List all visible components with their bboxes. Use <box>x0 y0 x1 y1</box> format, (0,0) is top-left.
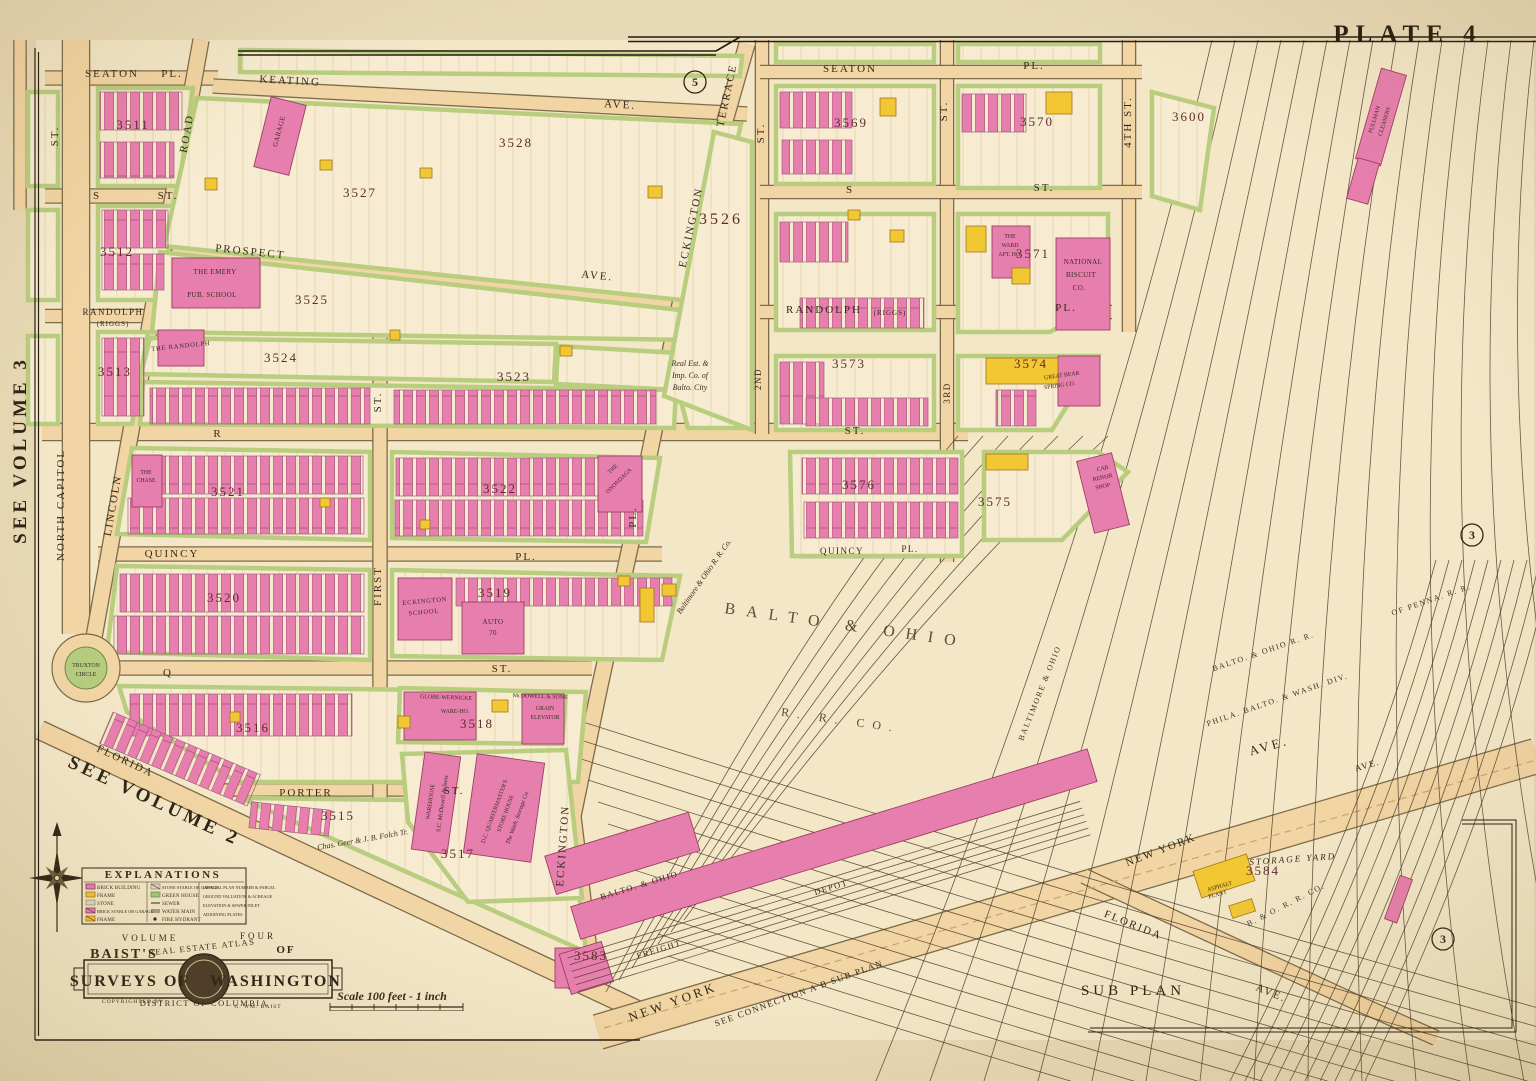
label-buildings-real3: Balto. City <box>673 383 708 392</box>
label-buildings-ward0: THE <box>1004 234 1016 240</box>
label-landmarks-truxton2: CIRCLE <box>76 672 97 678</box>
label-legend-col1-3: BRICK STABLE OR GARAGE <box>97 909 153 914</box>
label-streets-quincy_e: QUINCY <box>820 546 864 556</box>
city-block <box>28 210 58 300</box>
label-streets-nc_st: ST. <box>49 126 61 147</box>
label-buildings-chase1: THE <box>140 470 152 476</box>
label-buildings-natbisc2: BISCUIT <box>1066 271 1096 279</box>
label-buildings-globe2: WARE-HO. <box>441 709 470 715</box>
rowhouse-strip <box>804 502 958 538</box>
label-legend-col2-3: WATER MAIN <box>162 910 195 915</box>
label-landmarks-truxton1: TRUXTON <box>72 663 100 669</box>
label-cartouche-author: G. WM. BAIST <box>234 1004 281 1010</box>
label-blocks-b3569: 3569 <box>834 115 868 130</box>
label-buildings-real2: Imp. Co. of <box>671 371 710 380</box>
frame-building <box>986 454 1028 470</box>
label-streets-randolph_e_pl: PL. <box>1055 302 1077 314</box>
label-legend-col2-4: FIRE HYDRANT <box>162 918 201 923</box>
legend-symbol-fire-hydrant <box>153 917 156 920</box>
label-blocks-b3519: 3519 <box>478 585 512 600</box>
label-buildings-real1: Real Est. & <box>670 359 709 368</box>
label-legend-title: EXPLANATIONS <box>105 869 222 881</box>
label-streets-quincy_w: QUINCY <box>145 548 200 560</box>
legend-swatch-brick <box>86 884 95 889</box>
label-streets-north_capitol: NORTH CAPITOL <box>55 449 67 561</box>
frame-building <box>880 98 896 116</box>
label-streets-st3: 3RD <box>942 382 952 404</box>
label-cartouche-volume: VOLUME <box>122 933 179 943</box>
label-blocks-b3524: 3524 <box>264 350 298 365</box>
frame-building <box>890 230 904 242</box>
label-blocks-b3576: 3576 <box>842 477 876 492</box>
label-buildings-auto1: AUTO <box>483 618 504 626</box>
label-legend-col3-1: GROUND VALUATION & ACREAGE <box>203 894 273 899</box>
label-blocks-b3513: 3513 <box>98 364 132 379</box>
label-legend-col3-3: ADJOINING PLATES <box>203 912 243 917</box>
frame-building <box>848 210 860 220</box>
rowhouse-strip <box>394 390 656 424</box>
label-refs-r5: 5 <box>692 75 698 89</box>
label-blocks-b3523: 3523 <box>497 369 531 384</box>
label-blocks-b3600: 3600 <box>1172 109 1206 124</box>
label-streets-first_st: ST. <box>372 392 384 413</box>
label-blocks-b3570: 3570 <box>1020 114 1054 129</box>
rowhouse-strip <box>135 456 363 494</box>
brick-building <box>172 258 260 308</box>
label-streets-eck_pl: PL. <box>627 506 639 528</box>
label-legend-col2-2: SEWER <box>162 902 180 907</box>
label-buildings-ward2: APT. HO. <box>998 252 1022 258</box>
label-streets-q_st: ST. <box>492 663 513 675</box>
rowhouse-strip <box>120 574 364 612</box>
label-cartouche-surveys: SURVEYS OF <box>70 973 190 990</box>
label-blocks-b3583: 3583 <box>574 948 608 963</box>
label-buildings-grain2: ELEVATOR <box>530 715 559 721</box>
label-blocks-b3528: 3528 <box>499 135 533 150</box>
label-cartouche-scale_label: Scale 100 feet - 1 inch <box>337 989 447 1003</box>
frame-building <box>420 520 430 529</box>
rowhouse-strip <box>100 142 174 178</box>
label-cartouche-of: OF <box>276 944 295 956</box>
label-buildings-natbisc1: NATIONAL <box>1064 258 1103 266</box>
label-blocks-b3521: 3521 <box>211 484 245 499</box>
legend-swatch-frame <box>86 892 95 897</box>
label-blocks-b3520: 3520 <box>207 590 241 605</box>
label-blocks-b3527: 3527 <box>343 185 377 200</box>
label-streets-r_e: ST. <box>845 425 866 437</box>
label-blocks-b3512: 3512 <box>100 244 134 259</box>
frame-building <box>420 168 432 178</box>
label-buildings-chase2: CHASE <box>136 478 155 484</box>
rowhouse-strip <box>806 398 928 426</box>
label-streets-porter: PORTER <box>279 787 333 799</box>
frame-building <box>492 700 508 712</box>
rowhouse-strip <box>102 254 164 290</box>
label-legend-col1-4: FRAME <box>97 918 115 923</box>
label-streets-s_e_st: ST. <box>1034 182 1055 194</box>
label-streets-st2_top: ST. <box>755 123 767 144</box>
label-legend-col1-0: BRICK BUILDING <box>97 886 141 891</box>
label-legend-col3-0: OFFICIAL PLAN NUMBER & PARCEL <box>203 885 276 890</box>
frame-building <box>966 226 986 252</box>
label-streets-seaton_e: SEATON <box>823 63 877 75</box>
label-blocks-b3517: 3517 <box>441 846 475 861</box>
label-streets-seaton_w: SEATON <box>85 68 139 80</box>
label-buildings-grain1: GRAIN <box>536 706 555 712</box>
frame-building <box>648 186 662 198</box>
label-buildings-emery1: THE EMERY <box>193 268 236 276</box>
label-cartouche-copyright: COPYRIGHTED BY <box>102 999 164 1005</box>
label-notes-see_vol3: SEE VOLUME 3 <box>10 356 31 544</box>
label-blocks-b3511: 3511 <box>116 117 150 132</box>
frame-building <box>662 584 676 596</box>
city-block <box>776 44 934 62</box>
label-blocks-b3525: 3525 <box>295 292 329 307</box>
legend-swatch-greenhouse <box>151 892 160 897</box>
label-blocks-b3516: 3516 <box>236 720 270 735</box>
label-notes-sub_plan: SUB PLAN <box>1081 983 1185 999</box>
label-streets-s_e: S <box>846 184 854 196</box>
label-streets-r_w: R <box>213 428 222 440</box>
frame-building <box>640 588 654 622</box>
label-refs-r3a: 3 <box>1469 528 1475 542</box>
label-streets-s_w_st: ST. <box>158 190 179 202</box>
brick-building <box>462 602 524 654</box>
label-streets-first: FIRST <box>372 566 384 606</box>
label-plate-title: PLATE 4 <box>1333 21 1482 48</box>
label-streets-st2: 2ND <box>753 368 763 390</box>
rowhouse-strip <box>996 390 1036 426</box>
label-streets-st4: 4TH ST. <box>1122 96 1134 148</box>
label-streets-keating_ave: AVE. <box>604 98 637 112</box>
rowhouse-strip <box>802 458 958 494</box>
map-canvas: PLATE 4SEE VOLUME 3SEE VOLUME 2SUB PLANS… <box>0 0 1536 1081</box>
label-blocks-b3574: 3574 <box>1014 356 1048 371</box>
label-streets-seaton_e_pl: PL. <box>1023 60 1045 72</box>
legend-swatch-stone <box>86 900 95 905</box>
city-block <box>28 336 58 424</box>
frame-building <box>618 576 630 586</box>
label-buildings-auto2: 70 <box>489 629 497 637</box>
label-legend-col1-2: STONE <box>97 902 114 907</box>
label-blocks-b3522: 3522 <box>483 481 517 496</box>
label-streets-randolph_e2: (RIGGS) <box>874 309 907 317</box>
atlas-plate-4-map: PLATE 4SEE VOLUME 3SEE VOLUME 2SUB PLANS… <box>0 0 1536 1081</box>
label-streets-randolph_w2: (RIGGS) <box>97 320 130 328</box>
label-refs-r3b: 3 <box>1440 932 1446 946</box>
label-buildings-emery2: PUB. SCHOOL <box>187 291 237 299</box>
label-legend-col1-1: FRAME <box>97 894 115 899</box>
frame-building <box>1046 92 1072 114</box>
label-legend-col3-2: ELEVATION & SEWER INLET <box>203 903 260 908</box>
label-buildings-ward1: WARD <box>1001 243 1018 249</box>
rowhouse-strip <box>102 210 168 248</box>
label-blocks-b3575: 3575 <box>978 494 1012 509</box>
label-streets-quincy_e_pl: PL. <box>901 544 918 554</box>
label-blocks-b3573: 3573 <box>832 356 866 371</box>
frame-building <box>560 346 572 356</box>
frame-building <box>390 330 400 340</box>
label-streets-randolph_w: RANDOLPH <box>82 307 143 317</box>
frame-building <box>320 498 330 507</box>
label-streets-randolph_e: RANDOLPH <box>786 304 862 316</box>
city-block <box>240 50 742 76</box>
label-legend-col2-1: GREEN HOUSE <box>162 894 199 899</box>
frame-building <box>398 716 410 728</box>
label-streets-st3_top: ST. <box>938 101 950 122</box>
rowhouse-strip <box>782 140 852 174</box>
frame-building <box>205 178 217 190</box>
rowhouse-strip <box>780 222 848 262</box>
label-cartouche-washington: WASHINGTON <box>210 973 342 990</box>
label-streets-q_w: Q <box>163 667 173 679</box>
label-streets-quincy_w_pl: PL. <box>515 551 537 563</box>
label-blocks-b3518: 3518 <box>460 716 494 731</box>
label-buildings-natbisc3: CO. <box>1073 284 1086 292</box>
rowhouse-strip <box>114 616 364 654</box>
brick-building <box>1058 356 1100 406</box>
label-blocks-b3526: 3526 <box>699 211 743 228</box>
label-blocks-b3515: 3515 <box>321 808 355 823</box>
rowhouse-strip <box>962 94 1026 132</box>
frame-building <box>1012 268 1030 284</box>
frame-building <box>320 160 332 170</box>
label-streets-s_w: S <box>93 190 101 202</box>
label-streets-seaton_w_pl: PL. <box>161 68 183 80</box>
rowhouse-strip <box>150 388 370 424</box>
